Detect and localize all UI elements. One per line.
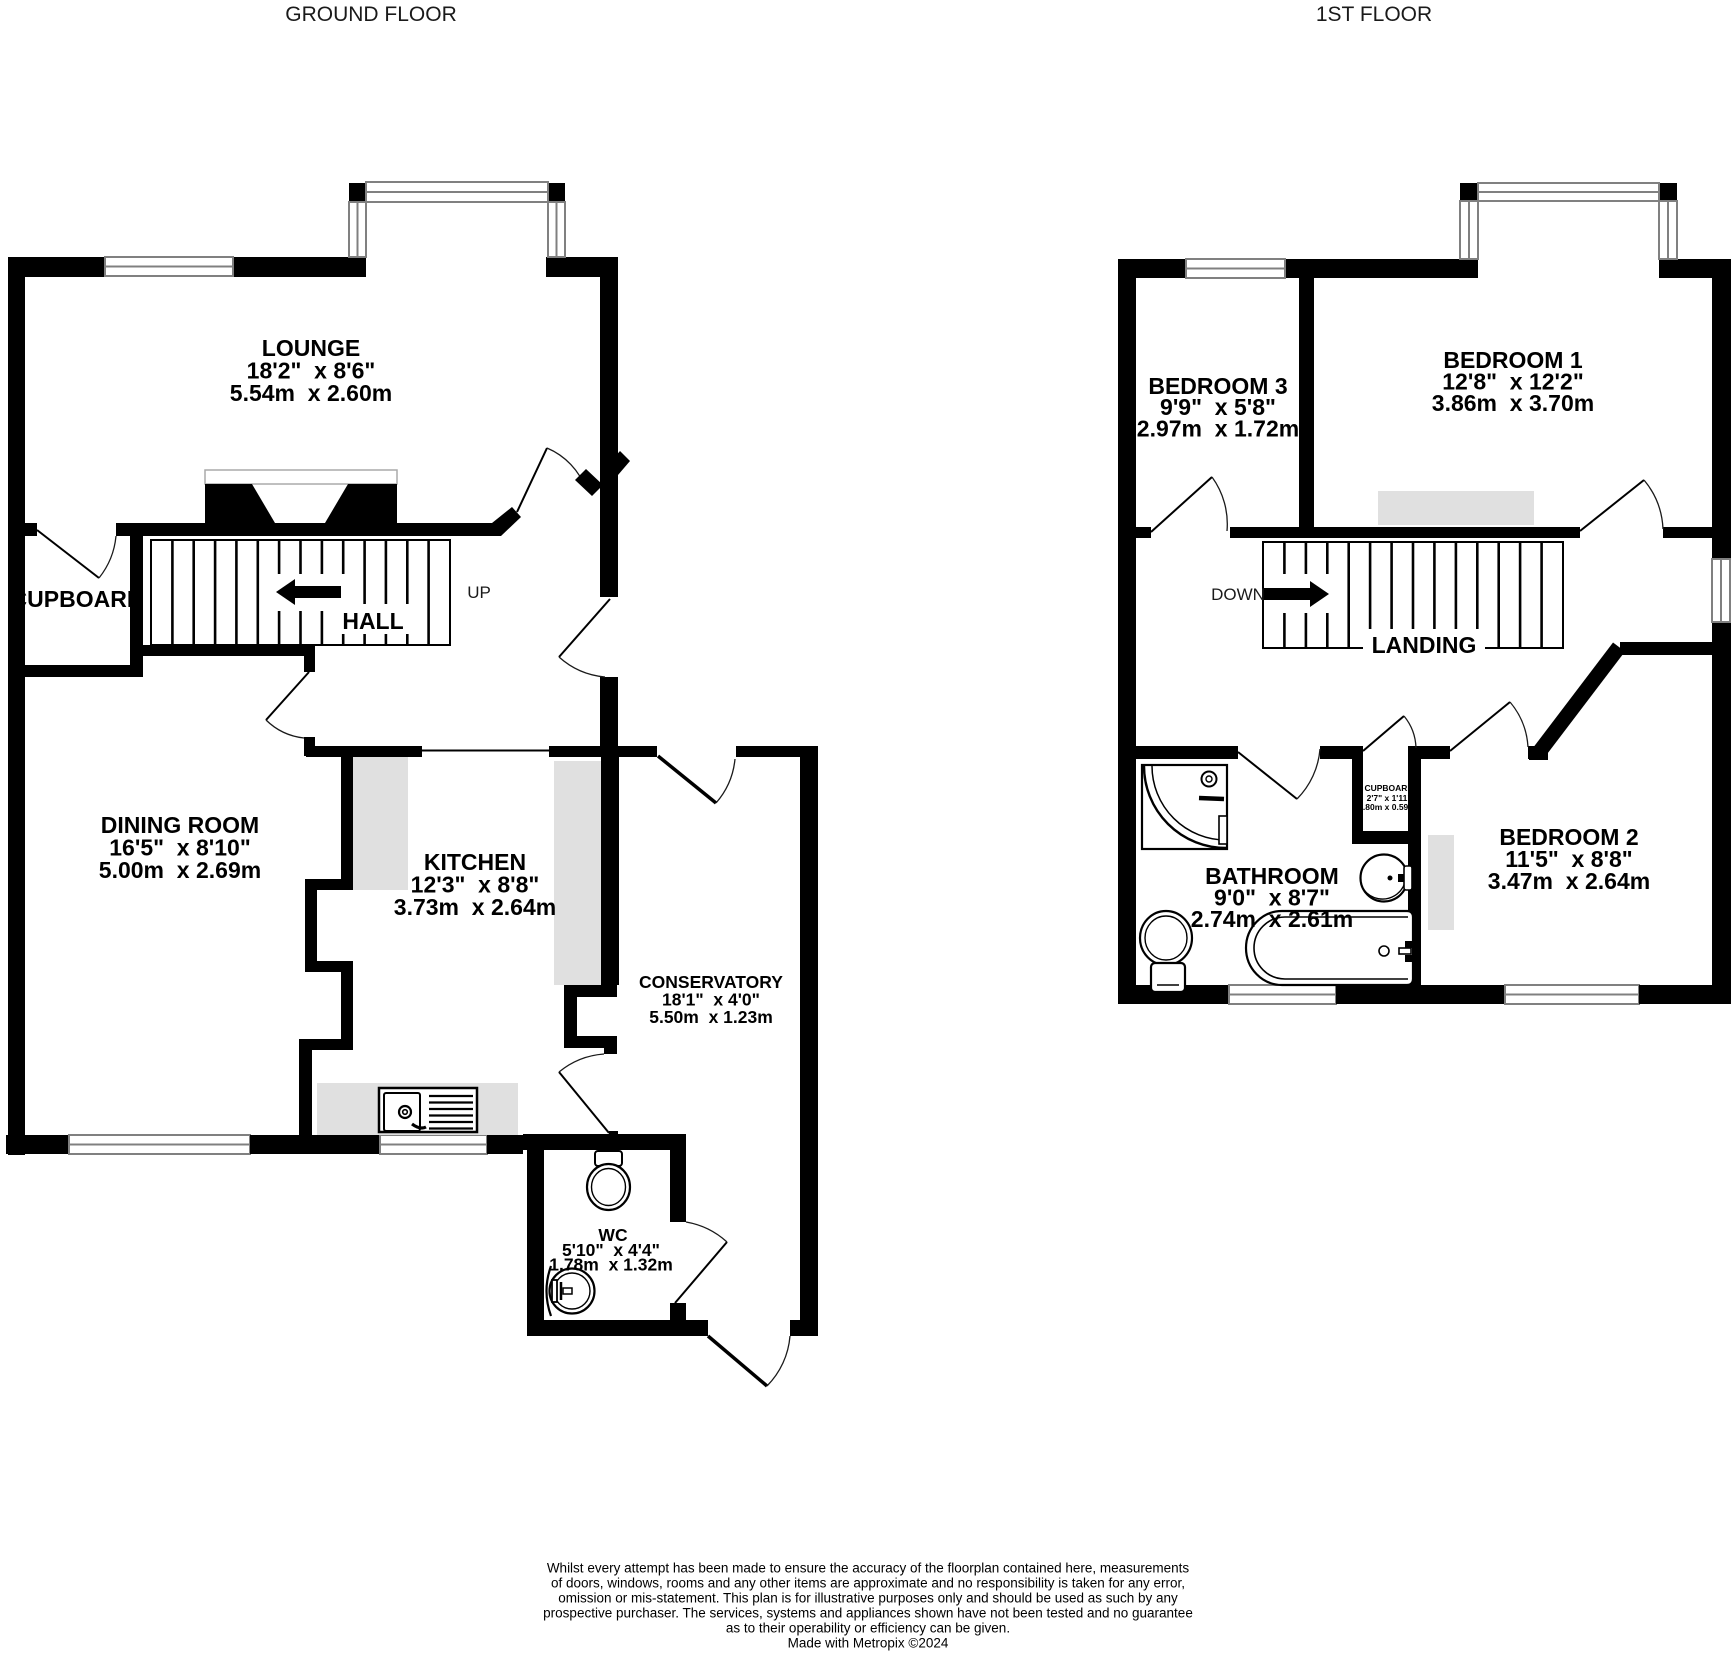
- svg-text:CUPBOARD: CUPBOARD: [1364, 783, 1413, 793]
- svg-text:Whilst every attempt has been: Whilst every attempt has been made to en…: [547, 1561, 1190, 1576]
- svg-text:2.97m x 1.72m: 2.97m x 1.72m: [1137, 416, 1299, 442]
- svg-text:Made with Metropix ©2024: Made with Metropix ©2024: [788, 1636, 949, 1651]
- svg-text:UP: UP: [467, 583, 491, 602]
- svg-text:5.50m x 1.23m: 5.50m x 1.23m: [649, 1007, 773, 1027]
- svg-text:LANDING: LANDING: [1372, 632, 1477, 658]
- svg-text:HALL: HALL: [342, 608, 403, 634]
- svg-text:2.74m x 2.61m: 2.74m x 2.61m: [1191, 906, 1353, 932]
- svg-text:DOWN: DOWN: [1211, 585, 1265, 604]
- svg-text:0.80m x 0.59m: 0.80m x 0.59m: [1358, 802, 1416, 812]
- svg-text:1.78m x 1.32m: 1.78m x 1.32m: [549, 1255, 673, 1275]
- svg-text:3.47m x 2.64m: 3.47m x 2.64m: [1488, 868, 1650, 894]
- svg-text:3.73m x 2.64m: 3.73m x 2.64m: [394, 894, 556, 920]
- svg-text:omission or mis-statement. Thi: omission or mis-statement. This plan is …: [558, 1591, 1178, 1606]
- svg-text:as to their operability or eff: as to their operability or efficiency ca…: [726, 1621, 1010, 1636]
- svg-text:5.54m x 2.60m: 5.54m x 2.60m: [230, 380, 392, 406]
- svg-text:5.00m x 2.69m: 5.00m x 2.69m: [99, 857, 261, 883]
- svg-text:1ST FLOOR: 1ST FLOOR: [1316, 3, 1432, 26]
- svg-text:of doors, windows, rooms and a: of doors, windows, rooms and any other i…: [551, 1576, 1185, 1591]
- svg-text:GROUND FLOOR: GROUND FLOOR: [285, 3, 457, 26]
- svg-text:CUPBOARD: CUPBOARD: [11, 586, 144, 612]
- svg-text:prospective purchaser. The ser: prospective purchaser. The services, sys…: [543, 1606, 1193, 1621]
- svg-text:3.86m x 3.70m: 3.86m x 3.70m: [1432, 390, 1594, 416]
